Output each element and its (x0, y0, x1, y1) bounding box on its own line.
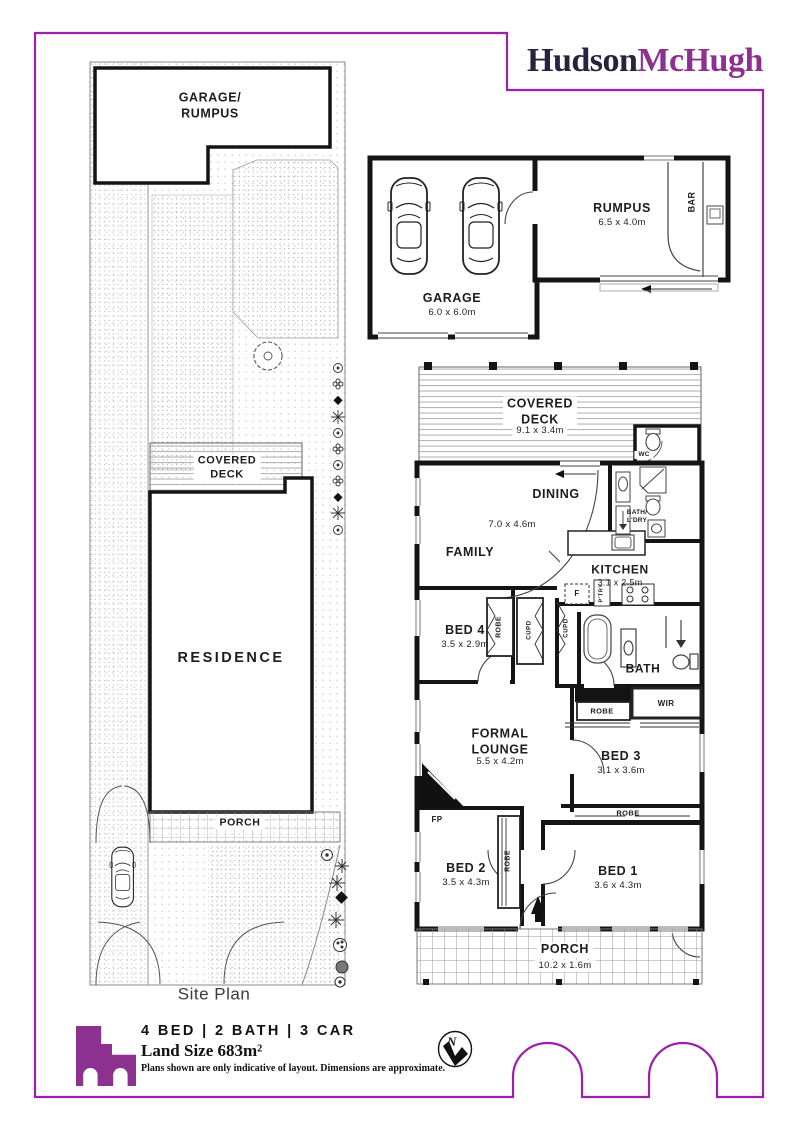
bed2-robe-label: ROBE (505, 850, 514, 872)
living-dims: 7.0 x 4.6m (488, 519, 535, 531)
bed3-label: BED 3 (601, 749, 641, 765)
wir-label: WIR (658, 699, 675, 709)
formal-lounge-dims: 5.5 x 4.2m (476, 756, 523, 768)
covered-deck-label: COVERED DECK (503, 396, 577, 427)
floorplan-page: HudsonMcHugh GARAGE/ RUMPUS COVERED DECK… (0, 0, 800, 1131)
bath-cupd-label: CUPD (563, 618, 571, 637)
site-plan-drawing (90, 62, 349, 987)
brand-logo: HudsonMcHugh (527, 42, 763, 80)
site-residence-outline (150, 478, 312, 812)
fridge-label: F (574, 589, 579, 599)
covered-deck-dims: 9.1 x 3.4m (512, 425, 567, 437)
fireplace-label: FP (427, 815, 446, 825)
bed1-label: BED 1 (598, 864, 638, 880)
disclaimer: Plans shown are only indicative of layou… (141, 1063, 445, 1074)
porch-dims: 10.2 x 1.6m (535, 960, 596, 972)
bed1-dims: 3.6 x 4.3m (594, 880, 641, 892)
property-features: 4 BED | 2 BATH | 3 CAR (141, 1023, 356, 1039)
site-plan-caption: Site Plan (178, 983, 251, 1004)
porch-label: PORCH (537, 942, 593, 958)
family-label: FAMILY (446, 545, 494, 561)
bed4-dims: 3.5 x 2.9m (441, 639, 488, 651)
house-drawing (414, 362, 706, 985)
car-icon (110, 847, 135, 907)
tree-icon (254, 342, 282, 370)
site-garage-rumpus-label: GARAGE/ RUMPUS (179, 90, 242, 121)
site-covered-deck-label: COVERED DECK (194, 454, 261, 482)
hall-cupd-label: CUPD (526, 620, 534, 639)
wc-label: WC (634, 451, 653, 459)
garage-label: GARAGE (423, 291, 481, 307)
land-size: Land Size 683m² (141, 1041, 262, 1061)
bed1-robe-label: ROBE (616, 808, 639, 817)
bed4-robe-label: ROBE (496, 616, 505, 638)
garage-dims: 6.0 x 6.0m (428, 307, 475, 319)
formal-lounge-label: FORMAL LOUNGE (471, 726, 528, 757)
site-residence-label: RESIDENCE (177, 649, 284, 667)
bed3-robe-label: ROBE (590, 706, 613, 715)
site-porch-label: PORCH (216, 816, 265, 829)
car-icon (460, 178, 502, 274)
rumpus-dims: 6.5 x 4.0m (598, 217, 645, 229)
dining-label: DINING (532, 487, 579, 503)
bed2-dims: 3.5 x 4.3m (442, 877, 489, 889)
bar-label: BAR (686, 192, 697, 213)
pantry-label: P'TRY (599, 584, 606, 603)
brand-logo-mchugh: McHugh (637, 42, 762, 79)
plan-drawing (0, 0, 800, 1131)
compass-north-label: N (447, 1034, 457, 1050)
kitchen-label: KITCHEN (591, 563, 649, 578)
car-icon (388, 178, 430, 274)
garage-building-drawing (370, 154, 728, 340)
bath-label: BATH (626, 662, 661, 677)
rumpus-label: RUMPUS (593, 201, 651, 217)
brand-logo-mark (76, 1026, 136, 1086)
bed3-dims: 3.1 x 3.6m (597, 765, 644, 777)
bed4-label: BED 4 (445, 623, 485, 639)
bed2-label: BED 2 (446, 861, 486, 877)
bath-ldry-label: BATH/ L'DRY (627, 509, 647, 525)
brand-logo-hudson: Hudson (527, 42, 637, 79)
